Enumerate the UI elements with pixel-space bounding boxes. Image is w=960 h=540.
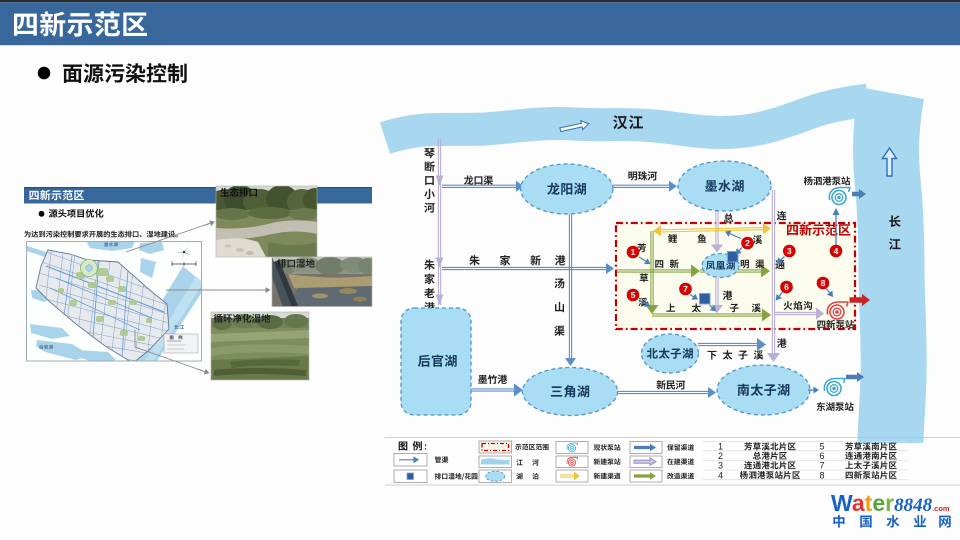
svg-text:8: 8 (821, 278, 826, 288)
svg-text:4: 4 (718, 470, 723, 480)
svg-text:2: 2 (718, 451, 723, 461)
svg-text:3: 3 (718, 461, 723, 471)
svg-text:7: 7 (819, 461, 824, 471)
svg-text:5: 5 (631, 290, 636, 300)
svg-text:7: 7 (683, 284, 688, 294)
svg-text:1: 1 (631, 247, 636, 257)
svg-text::: : (424, 442, 427, 452)
svg-text:4: 4 (834, 246, 839, 256)
svg-text:2: 2 (745, 238, 750, 248)
svg-text:8: 8 (819, 470, 824, 480)
svg-text:3: 3 (787, 246, 792, 256)
svg-text:6: 6 (819, 451, 824, 461)
svg-text:6: 6 (784, 282, 789, 292)
